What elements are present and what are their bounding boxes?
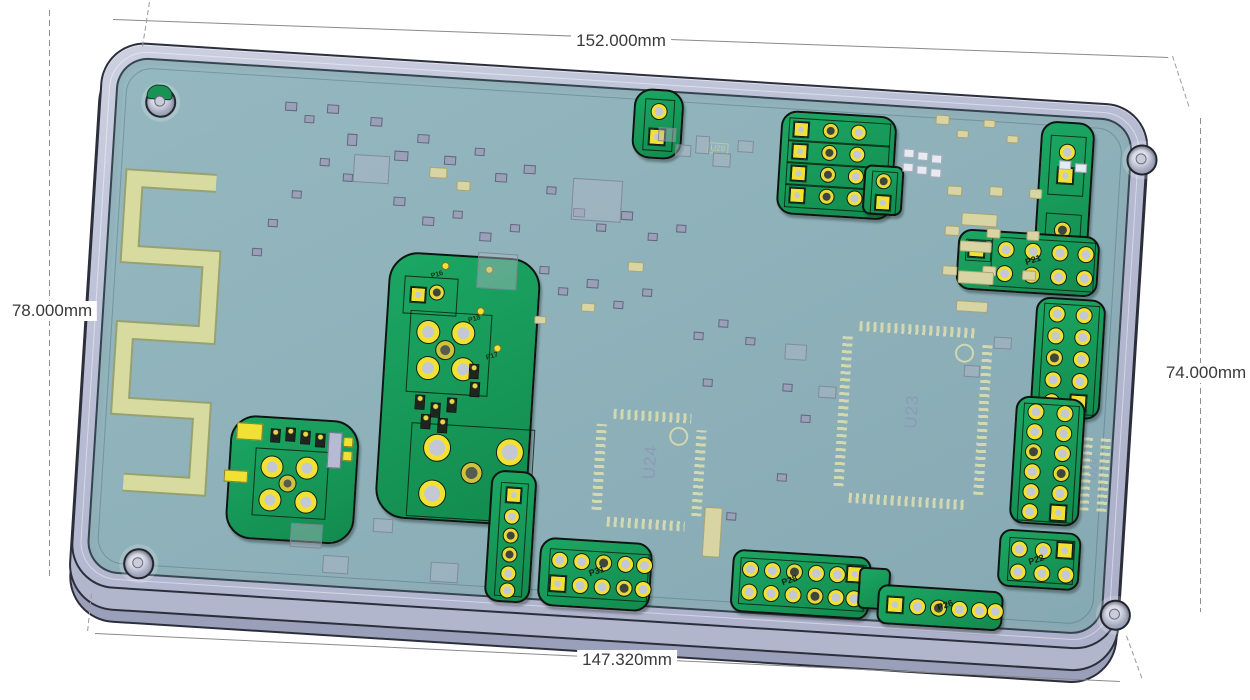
through-hole-pad [807, 588, 823, 604]
through-hole-pad [1046, 349, 1062, 365]
through-hole-pad [1026, 423, 1042, 439]
smd-component-ghost [596, 223, 606, 232]
smd-component-ghost [523, 165, 536, 175]
through-hole-pad [1023, 483, 1039, 499]
through-hole-pad [741, 584, 757, 600]
through-hole-pad [1076, 307, 1092, 323]
through-hole-pad [573, 553, 589, 569]
smd-component-ghost [495, 173, 508, 183]
through-hole-pad [998, 241, 1014, 257]
smd-component-ghost [539, 266, 549, 275]
smd-pad-ghost [947, 185, 963, 196]
cover-post [327, 432, 343, 469]
through-hole-pad [1054, 445, 1070, 461]
through-hole-pad [909, 598, 925, 614]
ic-footprint-ghost [290, 523, 323, 549]
smd-component-ghost [304, 115, 314, 124]
ic-footprint-ghost [818, 386, 837, 399]
smd-component-white [930, 168, 942, 178]
smd-component-white [1075, 163, 1088, 173]
dimension-label-right: 74.000mm [1161, 363, 1250, 383]
smd-component-ghost [452, 210, 462, 219]
silkscreen-label-u20: U20 [1087, 457, 1100, 481]
smd-component-ghost [417, 134, 430, 144]
ic-footprint-ghost [712, 153, 731, 168]
smd-component-ghost [393, 197, 406, 207]
through-hole-pad [635, 581, 651, 597]
smd-component-ghost [558, 287, 568, 296]
square-pad [790, 165, 806, 181]
ic-footprint-ghost [430, 562, 459, 584]
through-hole-pad [295, 456, 317, 478]
chip-component [300, 430, 311, 445]
through-hole-pad [987, 603, 1003, 619]
copper-island-p22: P22 [996, 528, 1081, 591]
dimension-label-left: 78.000mm [7, 301, 97, 321]
pcb-assembly: U24 U23 U20 FB2 U28 P21 P22 P16 P18 P17 [69, 40, 1151, 652]
smd-component-ghost [782, 383, 792, 392]
through-hole-pad [617, 556, 633, 572]
copper-island-right-lower [1008, 395, 1086, 527]
qfp-footprint-u23: U23 [832, 320, 993, 511]
square-pad [1057, 167, 1074, 184]
smd-pad-ghost [956, 300, 989, 313]
square-pad [887, 596, 904, 613]
through-hole-pad [1047, 327, 1063, 343]
smd-pad-ghost [983, 119, 995, 128]
through-hole-pad [1059, 144, 1075, 160]
smd-pad [342, 451, 353, 462]
extension-line [1172, 56, 1190, 110]
smd-component-ghost [474, 148, 484, 157]
copper-island-p26: P26 [876, 584, 1004, 632]
ic-footprint-ghost [695, 135, 710, 154]
through-hole-pad [1025, 443, 1041, 459]
through-hole-pad [996, 265, 1012, 281]
smd-component-ghost [444, 156, 457, 166]
through-hole-pad [1073, 351, 1089, 367]
ic-footprint-ghost [964, 365, 981, 378]
through-hole-pad [1051, 485, 1067, 501]
smd-component-ghost [343, 173, 353, 182]
smd-pad [343, 437, 354, 448]
smd-component-ghost [745, 337, 755, 346]
test-point [441, 262, 449, 270]
smd-pad-ghost [628, 261, 645, 272]
qfp-footprint-u24: U24 [590, 408, 707, 533]
ic-footprint-ghost [658, 127, 677, 142]
square-pad [793, 121, 809, 137]
smd-component-ghost [479, 232, 492, 242]
square-pad [1050, 504, 1067, 521]
through-hole-pad [828, 589, 844, 605]
through-hole-pad [1021, 503, 1037, 519]
chip-component [420, 414, 431, 430]
square-pad [1056, 542, 1073, 559]
smd-component-ghost [510, 224, 520, 233]
smd-pad-ghost [1029, 188, 1043, 199]
through-hole-pad [1076, 270, 1092, 286]
smd-component-ghost [777, 473, 787, 482]
smd-pad-ghost [429, 167, 448, 179]
square-pad [874, 194, 890, 210]
through-hole-pad [616, 580, 632, 596]
through-hole-pad [764, 562, 780, 578]
smd-component-white [1059, 160, 1072, 170]
through-hole-pad [742, 561, 758, 577]
ic-footprint-ghost [675, 144, 692, 157]
smd-pad-ghost [957, 270, 994, 285]
silkscreen-label-u23: U23 [901, 394, 923, 429]
smd-component-ghost [252, 248, 262, 257]
through-hole-pad [1011, 541, 1027, 557]
smd-component-ghost [268, 219, 278, 228]
smd-component-ghost [726, 512, 736, 521]
smd-component-white [931, 154, 943, 164]
through-hole-pad [1074, 329, 1090, 345]
smd-component-ghost [291, 190, 301, 199]
copper-patch [224, 469, 249, 482]
smd-pad-ghost [456, 180, 471, 191]
through-hole-pad [1057, 405, 1073, 421]
smd-component-ghost [394, 151, 409, 162]
smd-pad-ghost [959, 240, 992, 253]
through-hole-pad [1045, 371, 1061, 387]
smd-component-white [903, 148, 915, 158]
chip-component [437, 418, 448, 434]
smd-component-ghost [320, 158, 330, 167]
smd-pad-ghost [944, 225, 960, 236]
through-hole-pad [785, 586, 801, 602]
smd-pad-ghost [942, 265, 958, 276]
through-hole-pad [971, 602, 987, 618]
extension-line [142, 2, 150, 49]
smd-component-white [917, 151, 929, 161]
smd-pad-ghost [1026, 230, 1040, 241]
through-hole-pad [636, 557, 652, 573]
smd-component-ghost [370, 117, 383, 127]
smd-component-white [916, 165, 928, 175]
smd-component-ghost [642, 288, 652, 297]
copper-island-upper-right-ext [862, 164, 905, 216]
chip-component [430, 402, 441, 418]
smd-component-ghost [718, 319, 728, 328]
smd-component-ghost [327, 104, 340, 114]
ic-footprint-ghost [571, 178, 624, 223]
ic-footprint-ghost [784, 343, 807, 360]
smd-pad-ghost [534, 316, 546, 325]
smd-pad-ghost [989, 186, 1004, 197]
through-hole-pad [808, 565, 824, 581]
chip-component [446, 397, 457, 413]
through-hole-pad [551, 552, 567, 568]
chip-component [315, 433, 326, 448]
copper-island-p28: P28 [729, 549, 872, 621]
dimension-label-top: 152.000mm [571, 31, 671, 51]
smd-component-ghost [586, 279, 599, 289]
ic-footprint-ghost [993, 337, 1012, 350]
through-hole-pad [829, 566, 845, 582]
through-hole-pad [1052, 245, 1068, 261]
smd-pad-ghost [957, 130, 969, 139]
smd-component-ghost [647, 233, 657, 242]
through-hole-pad [1009, 564, 1025, 580]
smd-pad-ghost [935, 114, 950, 125]
chip-component [270, 428, 281, 443]
square-pad [791, 143, 807, 159]
cad-viewport[interactable]: U24 U23 U20 FB2 U28 P21 P22 P16 P18 P17 [0, 0, 1250, 700]
ic-footprint-ghost [353, 154, 391, 184]
copper-island-p31: P31 [536, 536, 653, 612]
ic-footprint-ghost [476, 252, 518, 290]
through-hole-pad [1033, 565, 1049, 581]
through-hole-pad [763, 585, 779, 601]
copper-patch [236, 422, 263, 441]
through-hole-pad [1078, 246, 1094, 262]
smd-component-ghost [347, 134, 358, 147]
through-hole-pad [260, 455, 282, 477]
smd-component-ghost [285, 102, 298, 112]
smd-component-ghost [613, 301, 623, 310]
smd-pad-ghost [581, 303, 596, 313]
ic-footprint-ghost [737, 140, 754, 153]
dimension-line-left [49, 10, 50, 578]
smd-pad-ghost [961, 212, 998, 227]
through-hole-pad [1050, 268, 1066, 284]
extension-line [1126, 636, 1143, 680]
smd-component-ghost [422, 216, 435, 226]
silkscreen-label-u24: U24 [640, 445, 662, 480]
chip-component [468, 364, 479, 380]
ic-footprint-ghost [322, 555, 349, 575]
through-hole-pad [1028, 403, 1044, 419]
chip-component [469, 382, 480, 398]
through-hole-pad [1049, 305, 1065, 321]
square-pad [789, 187, 805, 203]
square-pad [505, 487, 521, 503]
through-hole-pad [1057, 567, 1073, 583]
chip-component [414, 394, 425, 410]
ic-footprint-ghost [373, 518, 394, 533]
copper-island-strip [484, 469, 538, 604]
smd-pad-ghost [702, 507, 723, 558]
smd-component-ghost [621, 211, 634, 221]
smd-pad-ghost [1006, 135, 1018, 144]
smd-component-ghost [702, 378, 712, 387]
through-hole-pad [572, 577, 588, 593]
smd-component-ghost [676, 224, 686, 233]
chip-component [285, 427, 296, 442]
through-hole-pad [1072, 373, 1088, 389]
smd-component-ghost [693, 332, 703, 341]
smd-component-ghost [800, 415, 810, 424]
through-hole-pad [1055, 425, 1071, 441]
through-hole-pad [594, 578, 610, 594]
square-pad [410, 286, 426, 302]
dimension-label-bottom: 147.320mm [577, 650, 677, 670]
smd-pad-ghost [1022, 270, 1037, 281]
through-hole-pad [258, 488, 280, 510]
through-hole-pad [294, 490, 316, 512]
smd-component-ghost [546, 186, 556, 195]
through-hole-pad [651, 103, 667, 119]
smd-pad-ghost [986, 228, 1001, 239]
smd-component-white [902, 162, 914, 172]
through-hole-pad [1053, 465, 1069, 481]
through-hole-pad [1024, 463, 1040, 479]
square-pad [549, 575, 566, 592]
